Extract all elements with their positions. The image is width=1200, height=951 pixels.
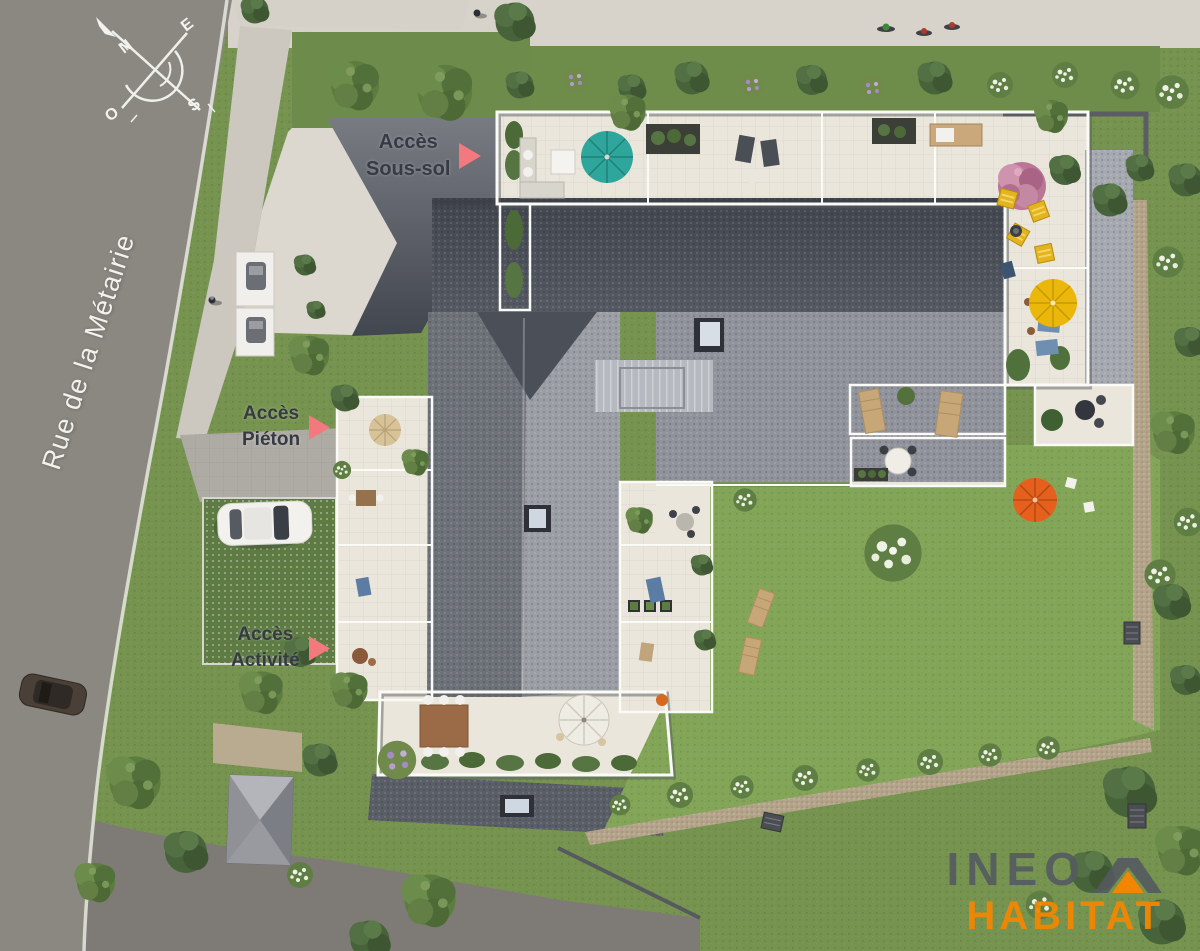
access-activite-line2: Activité	[231, 648, 300, 674]
access-arrow-icon	[309, 636, 330, 661]
developer-logo: INEO HABITAT	[898, 846, 1164, 936]
skylight	[524, 505, 551, 532]
pavilion	[226, 775, 293, 865]
access-sous-sol-text: Accès Sous-sol	[366, 129, 450, 183]
skylight	[694, 318, 724, 352]
umbrella-white	[559, 695, 609, 745]
skylight	[500, 795, 534, 817]
access-arrow-icon	[459, 143, 481, 169]
access-activite-line1: Accès	[237, 622, 293, 648]
access-sous-sol-line2: Sous-sol	[366, 156, 450, 183]
kiosk	[236, 252, 274, 306]
site-plan-art: N E S O	[0, 0, 1200, 951]
access-pieton-text: Accès Piéton	[242, 401, 300, 453]
kiosk	[236, 308, 274, 356]
access-label-pieton: Accès Piéton	[242, 401, 330, 453]
access-arrow-icon	[309, 415, 330, 440]
access-pieton-line1: Accès	[243, 401, 299, 427]
logo-name: INEO	[947, 846, 1087, 892]
umbrella-yellow	[1029, 279, 1077, 327]
access-sous-sol-line1: Accès	[379, 129, 438, 156]
vent-grate	[1124, 622, 1140, 644]
box-planters	[628, 600, 672, 612]
access-activite-text: Accès Activité	[231, 622, 300, 674]
site-plan: N E S O Rue de la Métairie Accès Sous-so…	[0, 0, 1200, 951]
access-pieton-line2: Piéton	[242, 427, 300, 453]
white-car	[213, 501, 315, 551]
vent-grate	[761, 812, 784, 832]
umbrella-orange	[1013, 478, 1057, 522]
access-label-activite: Accès Activité	[231, 622, 330, 674]
logo-roof-icon	[1092, 846, 1164, 894]
umbrella-teal	[581, 131, 633, 183]
vent-grate	[1128, 804, 1146, 828]
entry-lawn	[292, 32, 530, 128]
umbrella-tan	[369, 414, 401, 446]
logo-division: HABITAT	[966, 896, 1164, 936]
access-label-sous-sol: Accès Sous-sol	[366, 129, 481, 183]
